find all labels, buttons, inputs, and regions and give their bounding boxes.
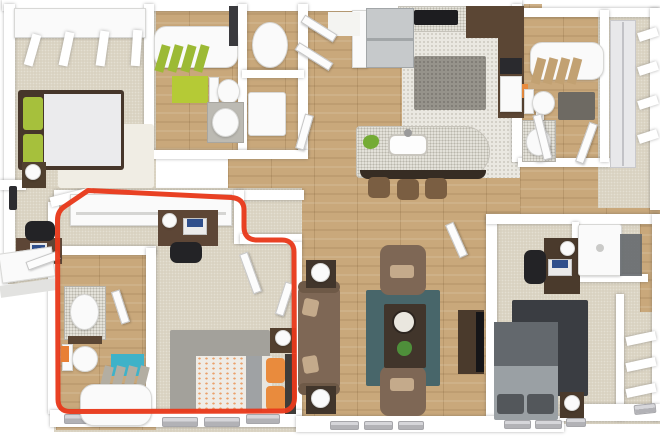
island-faucet bbox=[404, 129, 412, 137]
island-sink bbox=[388, 134, 428, 156]
bed-suite-blanket bbox=[246, 356, 262, 412]
bathmat-green bbox=[172, 76, 208, 103]
tub-suite bbox=[80, 384, 152, 426]
bar-stool-3 bbox=[425, 178, 447, 199]
window-living-3 bbox=[398, 421, 424, 430]
towel-orange-suite bbox=[61, 346, 69, 362]
shower-glass bbox=[620, 234, 642, 276]
window-living-2 bbox=[364, 421, 393, 430]
kitchen-mat bbox=[414, 56, 486, 110]
bed-left-pillow-1 bbox=[23, 97, 43, 130]
thermostat-panel bbox=[9, 186, 17, 210]
bed-suite-duvet bbox=[196, 356, 246, 412]
desk-lamp-right bbox=[560, 241, 575, 256]
lamp-nightstand-right bbox=[564, 395, 580, 411]
basin-suite bbox=[70, 294, 99, 330]
shower-drain bbox=[596, 244, 604, 252]
lamp-side-bottom bbox=[311, 389, 330, 408]
floor-plan-3d-image bbox=[0, 0, 660, 440]
bed-right-pillow-1 bbox=[497, 394, 524, 414]
lamp-left bbox=[25, 164, 41, 180]
lamp-nightstand-suite bbox=[275, 330, 291, 346]
cooktop bbox=[414, 10, 458, 25]
window-bedroom2-1 bbox=[504, 420, 531, 429]
lamp-side-top bbox=[311, 263, 330, 282]
window-suite-2 bbox=[162, 417, 198, 427]
chair-bedroom-right bbox=[524, 250, 546, 284]
wall-right-top bbox=[520, 8, 660, 17]
toilet-left-bowl bbox=[217, 79, 240, 104]
basin-bath-left bbox=[212, 108, 239, 137]
bed-suite-pillow-2 bbox=[266, 386, 285, 410]
washer bbox=[248, 92, 286, 136]
bed-right-blanket bbox=[494, 322, 558, 366]
laptop-suite-screen bbox=[187, 219, 203, 227]
wall-left-outer bbox=[4, 4, 15, 282]
mirror-shelf-dark bbox=[229, 6, 238, 46]
bar-stool-2 bbox=[397, 179, 419, 200]
window-living-1 bbox=[330, 421, 359, 430]
fridge-divider bbox=[366, 38, 414, 41]
wall-bath-block-bottom bbox=[144, 150, 308, 159]
dishwasher bbox=[500, 76, 522, 112]
bed-right-pillow-2 bbox=[527, 394, 554, 414]
armchair-bottom bbox=[380, 366, 426, 416]
window-suite-4 bbox=[246, 414, 280, 424]
bathmat-gray bbox=[558, 92, 595, 120]
window-bedroom2-2 bbox=[535, 420, 562, 429]
wall-suite-bath-top bbox=[56, 246, 156, 255]
wall-closet2-left bbox=[600, 10, 609, 162]
bed-left-duvet bbox=[44, 94, 121, 166]
toilet-right-bowl bbox=[532, 91, 555, 115]
wall-closet-br-left bbox=[616, 294, 624, 420]
armchair-top-pillow bbox=[390, 265, 414, 278]
chair-bedroom-left bbox=[25, 221, 55, 241]
utility-divider bbox=[242, 70, 304, 78]
sliding-closet-door-line bbox=[622, 22, 624, 166]
bar-stool-1 bbox=[368, 177, 390, 198]
desk-suite-lamp bbox=[162, 213, 177, 228]
wall-right-outer bbox=[650, 8, 660, 210]
laptop-right-screen bbox=[552, 260, 568, 268]
coffee-table-tray bbox=[392, 310, 416, 334]
water-heater bbox=[252, 22, 288, 68]
chair-suite bbox=[170, 242, 202, 263]
bed-suite-headboard bbox=[285, 354, 296, 414]
window-suite-3 bbox=[204, 417, 240, 427]
sofa-pillow-2 bbox=[302, 355, 320, 374]
bed-suite-pillow-1 bbox=[266, 358, 285, 383]
armchair-bottom-pillow bbox=[390, 378, 414, 391]
oven-front bbox=[500, 58, 522, 74]
tv bbox=[476, 312, 484, 372]
vanity-suite-base bbox=[68, 336, 102, 344]
toilet-suite-bowl bbox=[72, 346, 98, 372]
window-bedroom2-3 bbox=[566, 418, 586, 427]
cabinet-upper bbox=[466, 6, 524, 38]
